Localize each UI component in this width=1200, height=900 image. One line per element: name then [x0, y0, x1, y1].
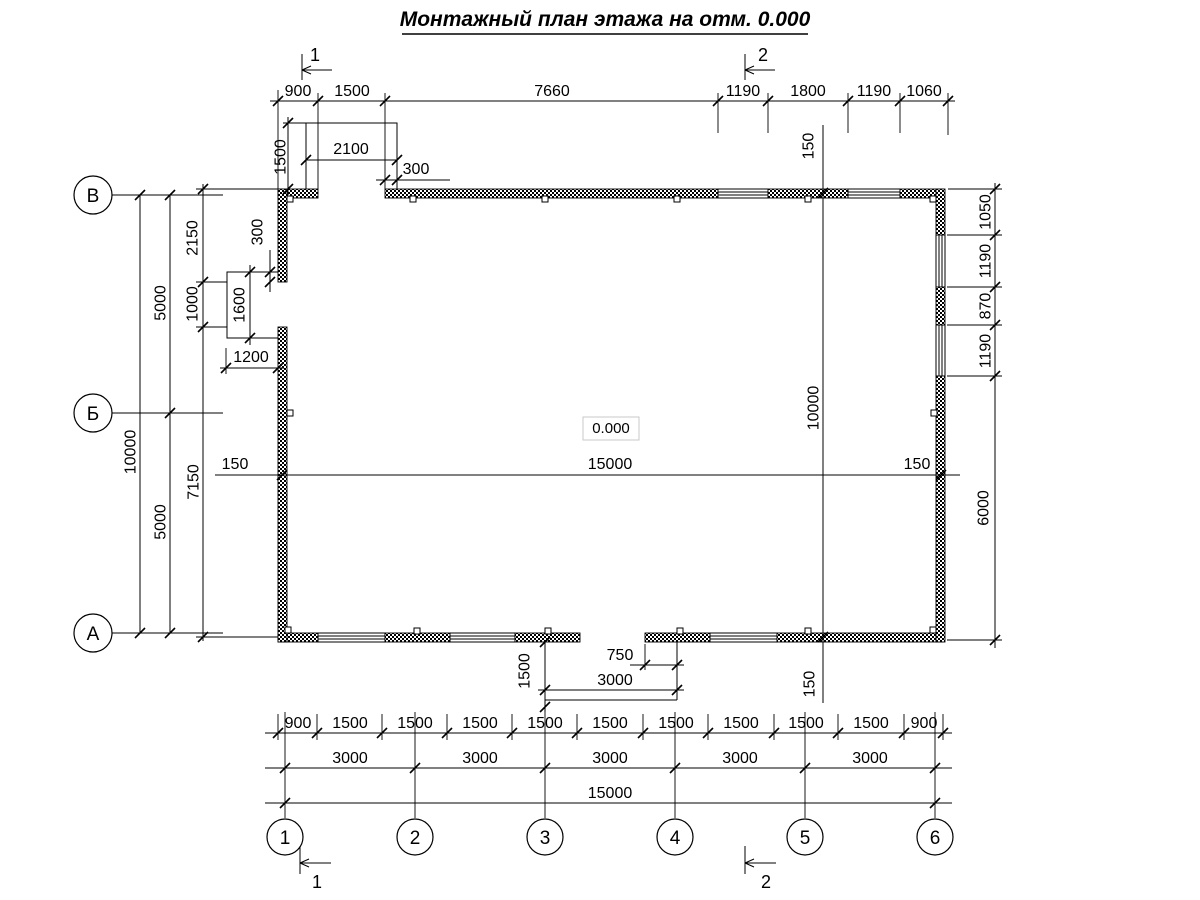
dim-b2-3: 3000 — [722, 750, 758, 767]
axis-label-V: В — [87, 186, 100, 207]
axis-label-5: 5 — [800, 828, 811, 849]
dim-top-door-300: 300 — [403, 161, 430, 178]
dim-top-door-2100: 2100 — [333, 141, 369, 158]
dim-left-5000a: 5000 — [153, 285, 170, 321]
embedded-plate-marks — [285, 196, 937, 634]
dim-top-1060: 1060 — [906, 83, 942, 100]
dim-top-1190a: 1190 — [726, 83, 761, 100]
axis-label-B: Б — [87, 404, 99, 425]
dim-left-1000: 1000 — [185, 286, 202, 322]
dim-left-door-300: 300 — [250, 219, 267, 246]
column-axis-bubbles: 1 2 3 4 5 6 — [267, 819, 953, 855]
dim-left-10000: 10000 — [123, 430, 140, 475]
exterior-walls — [278, 189, 945, 642]
dim-height-150-top: 150 — [801, 133, 818, 160]
axis-label-6: 6 — [930, 828, 941, 849]
dim-width-150-left: 150 — [222, 456, 249, 473]
dim-b2-2: 3000 — [592, 750, 628, 767]
page-title: Монтажный план этажа на отм. 0.000 — [400, 8, 811, 31]
dim-height-10000: 10000 — [806, 386, 823, 431]
dim-left-2150: 2150 — [185, 220, 202, 256]
dim-top-1500: 1500 — [334, 83, 370, 100]
dim-right-1050: 1050 — [978, 194, 995, 230]
axis-label-1: 1 — [280, 828, 291, 849]
dim-bottom-15000: 15000 — [588, 785, 633, 802]
dim-b1-7: 1500 — [723, 715, 759, 732]
dim-top-1800: 1800 — [790, 83, 826, 100]
dim-b1-10: 900 — [911, 715, 938, 732]
dim-right-1190b: 1190 — [978, 334, 995, 369]
section-2-bottom-label: 2 — [761, 872, 771, 892]
dim-b2-4: 3000 — [852, 750, 888, 767]
dim-b1-2: 1500 — [397, 715, 433, 732]
dim-left-door-1200: 1200 — [233, 349, 269, 366]
drawing-sheet: Монтажный план этажа на отм. 0.000 — [0, 0, 1200, 900]
interior-dimension-lines — [215, 125, 960, 703]
dim-right-870: 870 — [978, 293, 995, 320]
section-1-bottom-label: 1 — [312, 872, 322, 892]
dim-top-door-1500: 1500 — [273, 139, 290, 175]
dim-b1-6: 1500 — [658, 715, 694, 732]
dim-porch-750: 750 — [607, 647, 634, 664]
row-axis-bubbles: В Б А — [74, 176, 112, 652]
floor-plan-canvas: Монтажный план этажа на отм. 0.000 — [0, 0, 1200, 900]
dim-b1-9: 1500 — [853, 715, 889, 732]
section-marks: 1 2 1 2 — [300, 45, 776, 892]
dimension-ticks — [135, 96, 1000, 808]
dim-porch-1500: 1500 — [517, 653, 534, 689]
dim-width-150-right: 150 — [904, 456, 931, 473]
section-2-top-label: 2 — [758, 45, 768, 65]
dim-porch-3000: 3000 — [597, 672, 633, 689]
dim-b2-1: 3000 — [462, 750, 498, 767]
dim-top-900: 900 — [285, 83, 312, 100]
dim-right-6000: 6000 — [976, 490, 993, 526]
dim-left-5000b: 5000 — [153, 504, 170, 540]
dim-b1-3: 1500 — [462, 715, 498, 732]
dim-b1-8: 1500 — [788, 715, 824, 732]
dim-b1-0: 900 — [285, 715, 312, 732]
axis-label-A: А — [87, 624, 100, 645]
elevation-mark: 0.000 — [583, 417, 639, 440]
elevation-value: 0.000 — [592, 420, 630, 437]
dim-b2-0: 3000 — [332, 750, 368, 767]
dim-top-7660: 7660 — [534, 83, 570, 100]
dim-b1-5: 1500 — [592, 715, 628, 732]
top-dimension-chain — [270, 90, 955, 189]
axis-label-3: 3 — [540, 828, 551, 849]
dim-left-7150: 7150 — [186, 464, 203, 500]
axis-label-4: 4 — [670, 828, 681, 849]
dim-b1-1: 1500 — [332, 715, 368, 732]
dim-left-door-1600: 1600 — [232, 287, 249, 323]
axis-label-2: 2 — [410, 828, 421, 849]
drawing-title: Монтажный план этажа на отм. 0.000 — [400, 8, 811, 34]
dim-top-1190b: 1190 — [857, 83, 892, 100]
section-1-top-label: 1 — [310, 45, 320, 65]
dim-b1-4: 1500 — [527, 715, 563, 732]
dim-right-1190a: 1190 — [978, 244, 995, 279]
dim-width-15000: 15000 — [588, 456, 633, 473]
dim-height-150-bottom: 150 — [802, 671, 819, 698]
